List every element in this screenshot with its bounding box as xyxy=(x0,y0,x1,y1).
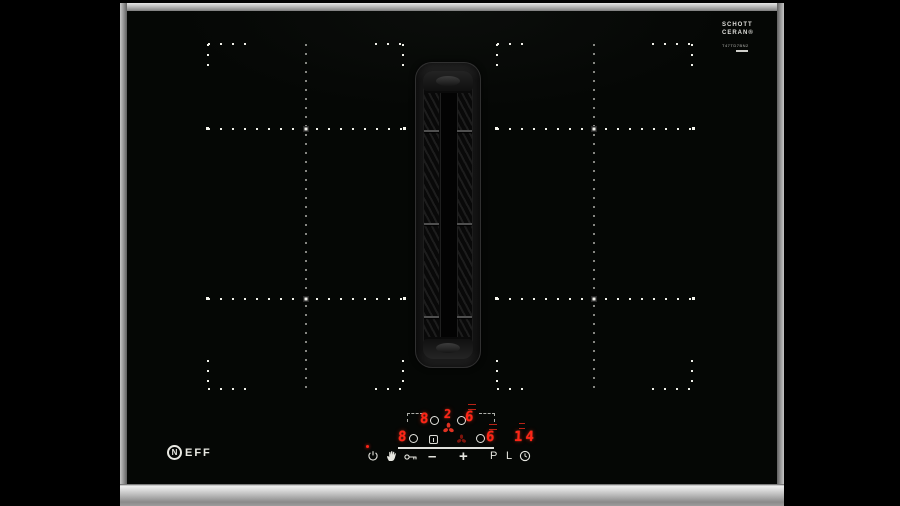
front-left-level-display: 8 xyxy=(398,430,407,444)
plus-symbol: + xyxy=(459,449,468,464)
fan-icon xyxy=(442,422,455,435)
glass-small-print-bar xyxy=(736,50,748,52)
zone-mid-marker xyxy=(591,296,597,302)
zone-corner-dots xyxy=(207,360,209,390)
zone-corner-dots xyxy=(402,44,404,74)
zone-mid-end-dot xyxy=(495,297,498,300)
zone-corner-dots xyxy=(496,360,498,390)
hand-icon xyxy=(386,450,398,462)
steel-frame-left xyxy=(120,3,127,486)
steel-frame-top xyxy=(120,3,784,11)
vent-cover-top xyxy=(423,71,473,91)
zone-mid-end-dot xyxy=(692,127,695,130)
zone-corner-dots xyxy=(375,43,403,45)
back-left-level-display: 8 xyxy=(420,412,429,426)
zone-corner-dots xyxy=(497,43,525,45)
vent-crossbar xyxy=(424,130,439,132)
power-boost-symbol: P xyxy=(490,451,497,462)
zone-corner-dots xyxy=(652,388,692,390)
zone-corner-dots xyxy=(691,360,693,390)
power-led xyxy=(366,445,369,448)
extended-zone-indicator xyxy=(468,404,476,410)
timer-display: 14 xyxy=(514,430,538,444)
neff-logo: N EFF xyxy=(167,445,212,460)
zone-select-ring xyxy=(476,434,485,443)
ventilation-module xyxy=(415,62,481,368)
key-icon xyxy=(404,452,418,462)
vent-crossbar xyxy=(457,316,472,318)
zone-corner-dots xyxy=(208,43,248,45)
zone-corner-dots xyxy=(208,388,248,390)
vent-crossbar xyxy=(424,316,439,318)
neff-wordmark: EFF xyxy=(185,447,212,459)
vent-crossbar xyxy=(424,223,439,225)
display-separator-line xyxy=(398,447,494,449)
zone-mid-marker xyxy=(303,296,309,302)
zone-mid-end-dot xyxy=(206,297,209,300)
zone-corner-dots xyxy=(402,360,404,390)
schott-line2: CERAN® xyxy=(722,30,768,38)
zone-mid-marker xyxy=(303,126,309,132)
flex-zone-divider-dots xyxy=(305,44,307,390)
vent-crossbar xyxy=(457,223,472,225)
front-right-level-display: 6 xyxy=(486,430,495,444)
schott-line1: SCHOTT xyxy=(722,22,768,30)
display-bracket-right xyxy=(479,413,495,422)
extended-zone-indicator xyxy=(489,424,497,430)
vent-crossbar xyxy=(457,130,472,132)
steel-front-strip xyxy=(120,484,784,506)
zone-corner-dots xyxy=(652,43,692,45)
fan-level-display: 2 xyxy=(444,408,452,420)
vent-handle-bottom xyxy=(436,343,460,353)
vent-center-channel xyxy=(440,93,458,337)
zone-select-ring xyxy=(409,434,418,443)
neff-emblem: N xyxy=(167,445,182,460)
zone-mid-end-dot xyxy=(495,127,498,130)
flex-zone-divider-dots xyxy=(593,44,595,390)
clock-icon xyxy=(519,450,531,462)
zone-corner-dots xyxy=(497,388,525,390)
zone-corner-dots xyxy=(375,388,403,390)
vent-handle-top xyxy=(436,76,460,86)
lock-symbol: L xyxy=(506,451,512,462)
schott-ceran-print: SCHOTT CERAN® T47TD7BN2 xyxy=(722,22,768,52)
zone-corner-dots xyxy=(496,44,498,74)
glass-small-print: T47TD7BN2 xyxy=(722,43,768,49)
vent-grille xyxy=(423,71,473,359)
zone-mid-end-dot xyxy=(206,127,209,130)
vent-cover-bottom xyxy=(423,339,473,359)
zone-mid-marker xyxy=(591,126,597,132)
zone-mid-end-dot xyxy=(403,297,406,300)
steel-frame-right xyxy=(777,3,784,486)
pan-indicator-icon xyxy=(429,435,438,444)
zone-corner-dots xyxy=(207,44,209,74)
zone-corner-dots xyxy=(691,44,693,74)
back-right-level-display: 6 xyxy=(465,410,474,424)
minus-symbol: – xyxy=(428,449,436,464)
zone-mid-end-dot xyxy=(403,127,406,130)
power-icon xyxy=(367,450,379,462)
product-photo: { "product": { "brand_emblem_letter": "N… xyxy=(0,0,900,506)
zone-mid-end-dot xyxy=(692,297,695,300)
zone-select-ring xyxy=(430,416,439,425)
vent-fan-icon xyxy=(455,434,468,445)
